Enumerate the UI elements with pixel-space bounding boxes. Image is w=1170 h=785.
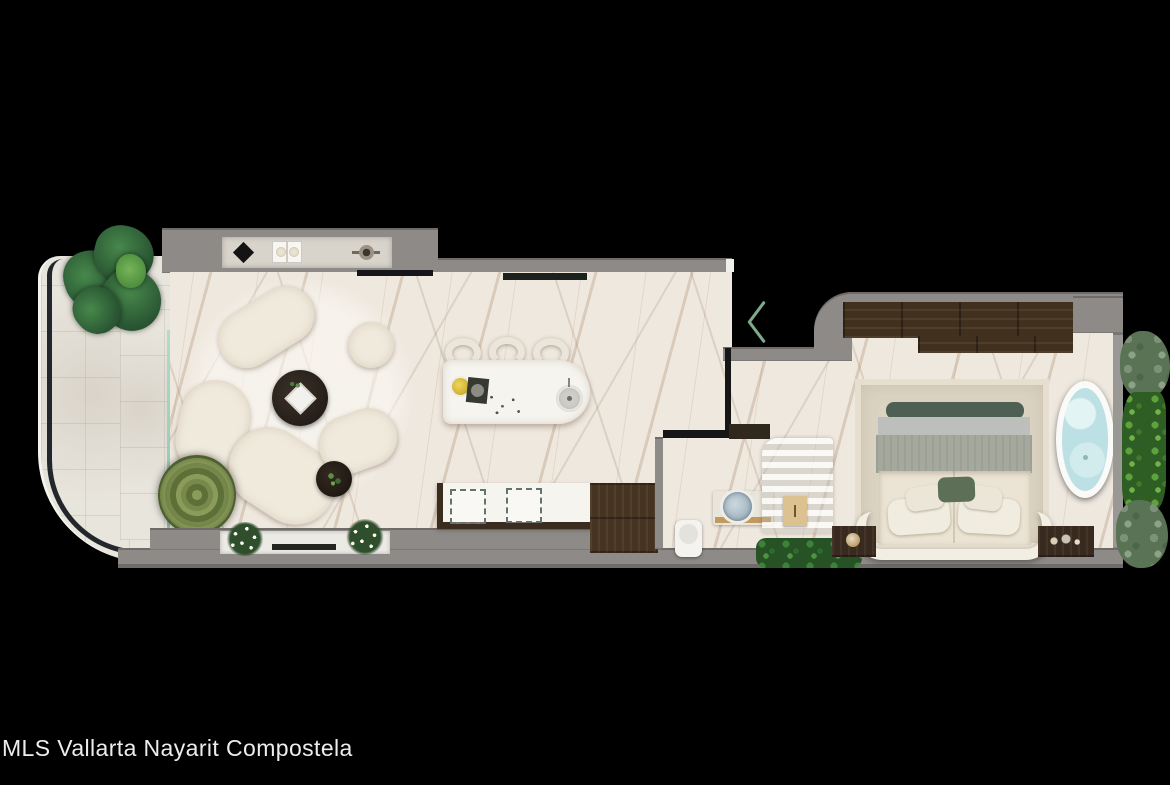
board-dish: [470, 383, 484, 397]
bed-blanket-fold: [878, 417, 1030, 437]
island-herb-speckles: [488, 392, 524, 418]
vertical-garden-top-bush: [1120, 331, 1170, 399]
monstera-plant: [60, 224, 172, 342]
closet-wood-floor: [590, 483, 658, 553]
kitchen-shelf-strip: [503, 273, 587, 280]
sill-vent: [272, 544, 336, 550]
bedroom-topright-wall-block: [1073, 296, 1123, 333]
stair-mat: [783, 496, 807, 526]
counter-appliance-outline: [450, 489, 486, 524]
screenshot-canvas: MLS Vallarta Nayarit Compostela: [0, 0, 1170, 785]
coffee-table-sprig: [288, 380, 302, 390]
bathtub-water: [1062, 388, 1108, 491]
mat-handle: [794, 505, 796, 517]
toilet-room-west-wall: [655, 437, 663, 549]
nightstand-left-decor: [846, 533, 860, 547]
bedroom-wardrobe: [843, 302, 1073, 338]
counter-appliance-outline: [506, 488, 542, 523]
console-knob-decor-circle: [359, 245, 374, 260]
bed-cushion-green: [938, 476, 976, 502]
nightstand-right-decor: [1046, 531, 1086, 551]
exterior-notch-bedroom: [843, 272, 1123, 293]
succulent-plant: [158, 455, 236, 535]
interior-wall-horizontal: [663, 430, 731, 438]
bed-blanket: [876, 435, 1032, 473]
pouf: [348, 322, 394, 368]
bed-headboard: [856, 512, 1052, 560]
toilet: [675, 520, 702, 557]
bottom-wall-edge: [118, 564, 1123, 568]
bedroom-wardrobe-lower: [918, 336, 1073, 353]
book-candle: [276, 247, 286, 257]
toilet-seat: [679, 524, 698, 544]
monstera-leaf-light: [116, 254, 146, 288]
sink-drain: [567, 396, 572, 401]
sill-flower-bouquet: [346, 519, 384, 555]
console-open-book: [272, 241, 302, 263]
book-spine: [286, 241, 288, 263]
island-sink: [556, 385, 583, 412]
vertical-garden-middle: [1122, 392, 1166, 510]
book-candle: [289, 247, 299, 257]
island-faucet: [568, 378, 570, 387]
island-serving-board: [466, 377, 489, 404]
back-chevron-icon[interactable]: [742, 298, 772, 346]
sill-flower-bouquet: [226, 522, 264, 556]
watermark-caption: MLS Vallarta Nayarit Compostela: [2, 735, 422, 765]
vanity-basin: [723, 492, 752, 521]
bathroom-door-bar: [729, 424, 770, 439]
living-tv-strip: [357, 270, 433, 276]
side-table-plant: [324, 469, 344, 489]
bathtub-drain: [1083, 455, 1088, 460]
vertical-garden-bottom-bush: [1116, 500, 1168, 568]
